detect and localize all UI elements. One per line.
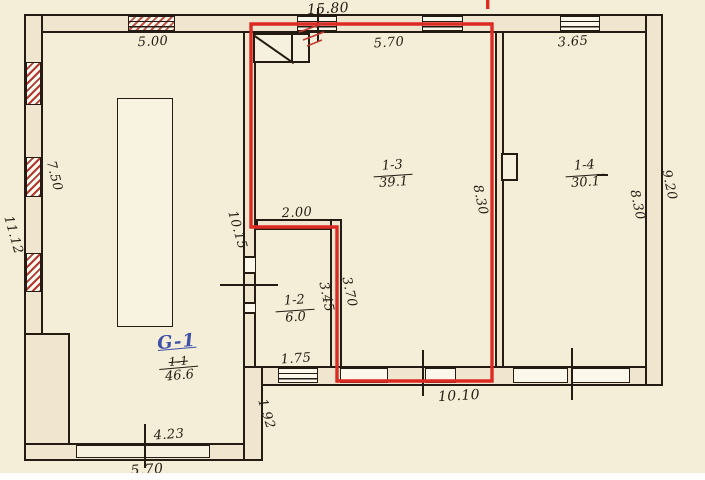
room-label-1-4: 1-4 30.1 bbox=[564, 158, 605, 193]
floor-plan-canvas: 15.80 5.00 5.70 3.65 7.50 11.12 10.15 2.… bbox=[0, 0, 705, 480]
room-1-3-highlight bbox=[0, 0, 705, 480]
dim-r14-top: 3.65 bbox=[557, 33, 589, 50]
room-area: 39.1 bbox=[374, 175, 414, 193]
red-check-scribble bbox=[299, 23, 325, 46]
room-label-g1: G-1 1-1 46.6 bbox=[156, 332, 199, 385]
dim-bottom-middle: 10.10 bbox=[438, 387, 481, 405]
dim-top-total: 15.80 bbox=[307, 0, 350, 18]
room-label-1-2: 1-2 6.0 bbox=[274, 293, 315, 328]
scan-edge bbox=[0, 473, 705, 480]
highlight-polygon bbox=[251, 24, 492, 381]
red-mark-top bbox=[486, 0, 489, 9]
dim-r12-top: 2.00 bbox=[281, 205, 312, 222]
room-label-1-3: 1-3 39.1 bbox=[372, 158, 413, 193]
room-area: 6.0 bbox=[276, 310, 316, 328]
dim-r13-top: 5.70 bbox=[373, 34, 405, 51]
room-number-blue-ink: G-1 bbox=[156, 332, 197, 354]
room-area: 30.1 bbox=[566, 175, 606, 193]
dim-r12-bottom: 1.75 bbox=[280, 350, 312, 367]
dim-g1-bottom: 4.23 bbox=[153, 426, 185, 443]
room-area: 46.6 bbox=[159, 367, 199, 384]
dim-g1-top: 5.00 bbox=[137, 34, 168, 51]
